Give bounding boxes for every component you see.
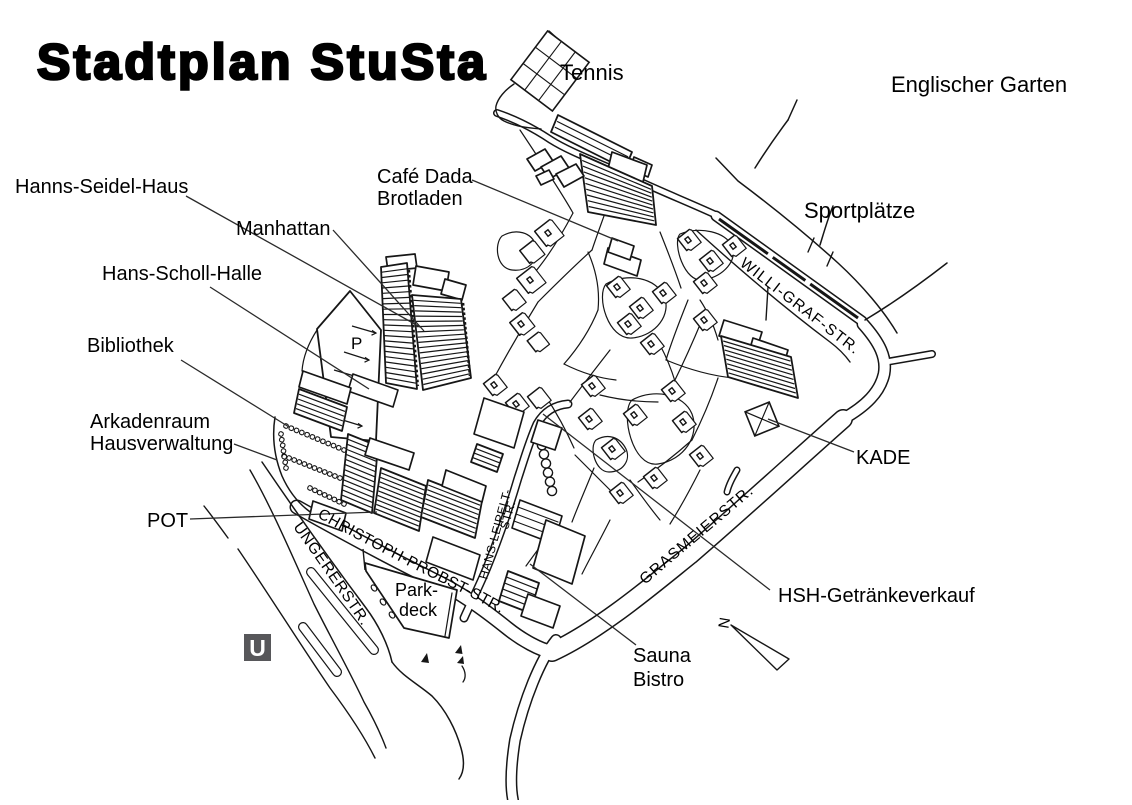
svg-text:U: U <box>249 635 266 661</box>
svg-text:P: P <box>351 334 362 353</box>
svg-text:Sportplätze: Sportplätze <box>804 198 915 223</box>
svg-text:Tennis: Tennis <box>560 60 624 85</box>
svg-text:Bibliothek: Bibliothek <box>87 335 175 357</box>
svg-text:Manhattan: Manhattan <box>236 218 331 240</box>
svg-text:Café Dada: Café Dada <box>377 166 473 188</box>
svg-text:Park-: Park- <box>395 580 438 600</box>
svg-text:Bistro: Bistro <box>633 669 684 691</box>
svg-text:POT: POT <box>147 510 188 532</box>
svg-text:Brotladen: Brotladen <box>377 188 463 210</box>
svg-text:Arkadenraum: Arkadenraum <box>90 411 210 433</box>
svg-text:Stadtplan StuSta: Stadtplan StuSta <box>37 34 488 90</box>
svg-text:deck: deck <box>399 600 438 620</box>
svg-text:Sauna: Sauna <box>633 645 692 667</box>
svg-text:Hans-Scholl-Halle: Hans-Scholl-Halle <box>102 263 262 285</box>
svg-text:Hanns-Seidel-Haus: Hanns-Seidel-Haus <box>15 176 188 198</box>
svg-text:Englischer Garten: Englischer Garten <box>891 72 1067 97</box>
svg-text:Hausverwaltung: Hausverwaltung <box>90 433 233 455</box>
svg-text:KADE: KADE <box>856 447 910 469</box>
svg-text:HSH-Getränkeverkauf: HSH-Getränkeverkauf <box>778 585 975 607</box>
